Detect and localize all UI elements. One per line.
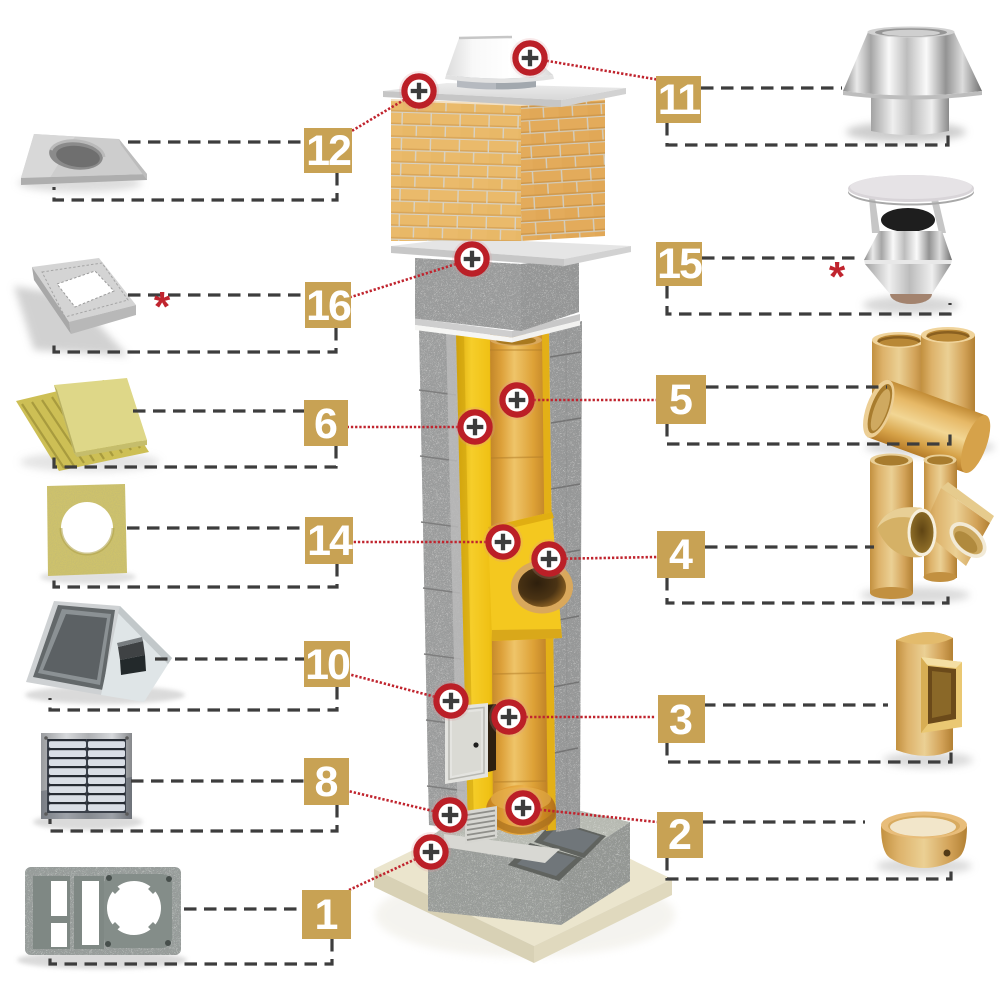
svg-text:4: 4 bbox=[669, 531, 693, 579]
svg-text:15: 15 bbox=[657, 240, 702, 288]
svg-text:10: 10 bbox=[305, 641, 350, 689]
svg-text:8: 8 bbox=[315, 758, 339, 806]
svg-text:1: 1 bbox=[315, 891, 339, 939]
svg-text:*: * bbox=[829, 253, 846, 300]
svg-text:3: 3 bbox=[669, 696, 693, 744]
svg-text:2: 2 bbox=[668, 811, 692, 859]
svg-text:16: 16 bbox=[306, 282, 351, 330]
svg-text:11: 11 bbox=[658, 76, 701, 124]
svg-text:*: * bbox=[154, 283, 171, 330]
svg-text:14: 14 bbox=[307, 517, 353, 565]
svg-text:12: 12 bbox=[306, 127, 351, 175]
svg-text:6: 6 bbox=[314, 400, 338, 448]
svg-text:5: 5 bbox=[669, 376, 693, 424]
